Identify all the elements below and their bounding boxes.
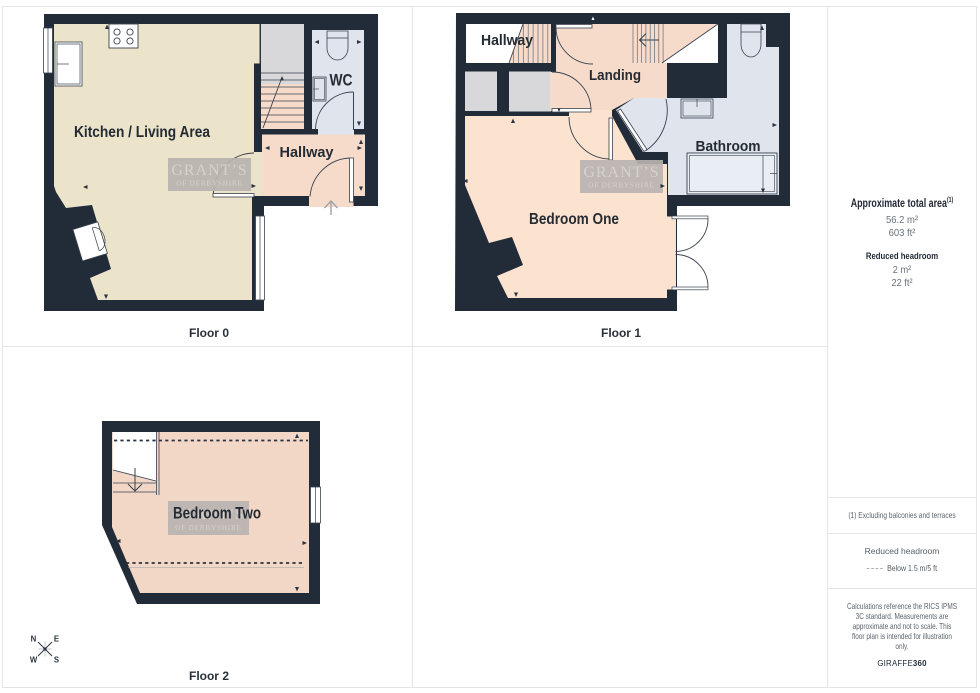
svg-text:Landing: Landing	[589, 68, 641, 84]
svg-text:GRANT’S: GRANT’S	[171, 162, 247, 179]
svg-text:Floor 0: Floor 0	[189, 326, 229, 340]
svg-text:Bedroom Two: Bedroom Two	[173, 505, 261, 523]
svg-text:OF DERBYSHIRE: OF DERBYSHIRE	[588, 182, 655, 190]
svg-text:WC: WC	[330, 71, 353, 90]
svg-text:Floor 1: Floor 1	[601, 326, 641, 340]
svg-text:N: N	[31, 635, 37, 644]
svg-text:GRANT’S: GRANT’S	[583, 164, 659, 181]
svg-text:Bedroom One: Bedroom One	[529, 211, 619, 228]
svg-text:Bathroom: Bathroom	[696, 139, 761, 155]
svg-text:OF DERBYSHIRE: OF DERBYSHIRE	[175, 524, 242, 532]
svg-text:OF DERBYSHIRE: OF DERBYSHIRE	[176, 180, 243, 188]
svg-text:E: E	[54, 635, 59, 644]
svg-text:Kitchen / Living Area: Kitchen / Living Area	[74, 124, 210, 141]
svg-text:Floor 2: Floor 2	[189, 669, 229, 683]
svg-text:S: S	[54, 656, 59, 665]
svg-text:Hallway: Hallway	[280, 145, 334, 161]
svg-text:Hallway: Hallway	[481, 33, 533, 49]
svg-text:W: W	[30, 656, 38, 665]
